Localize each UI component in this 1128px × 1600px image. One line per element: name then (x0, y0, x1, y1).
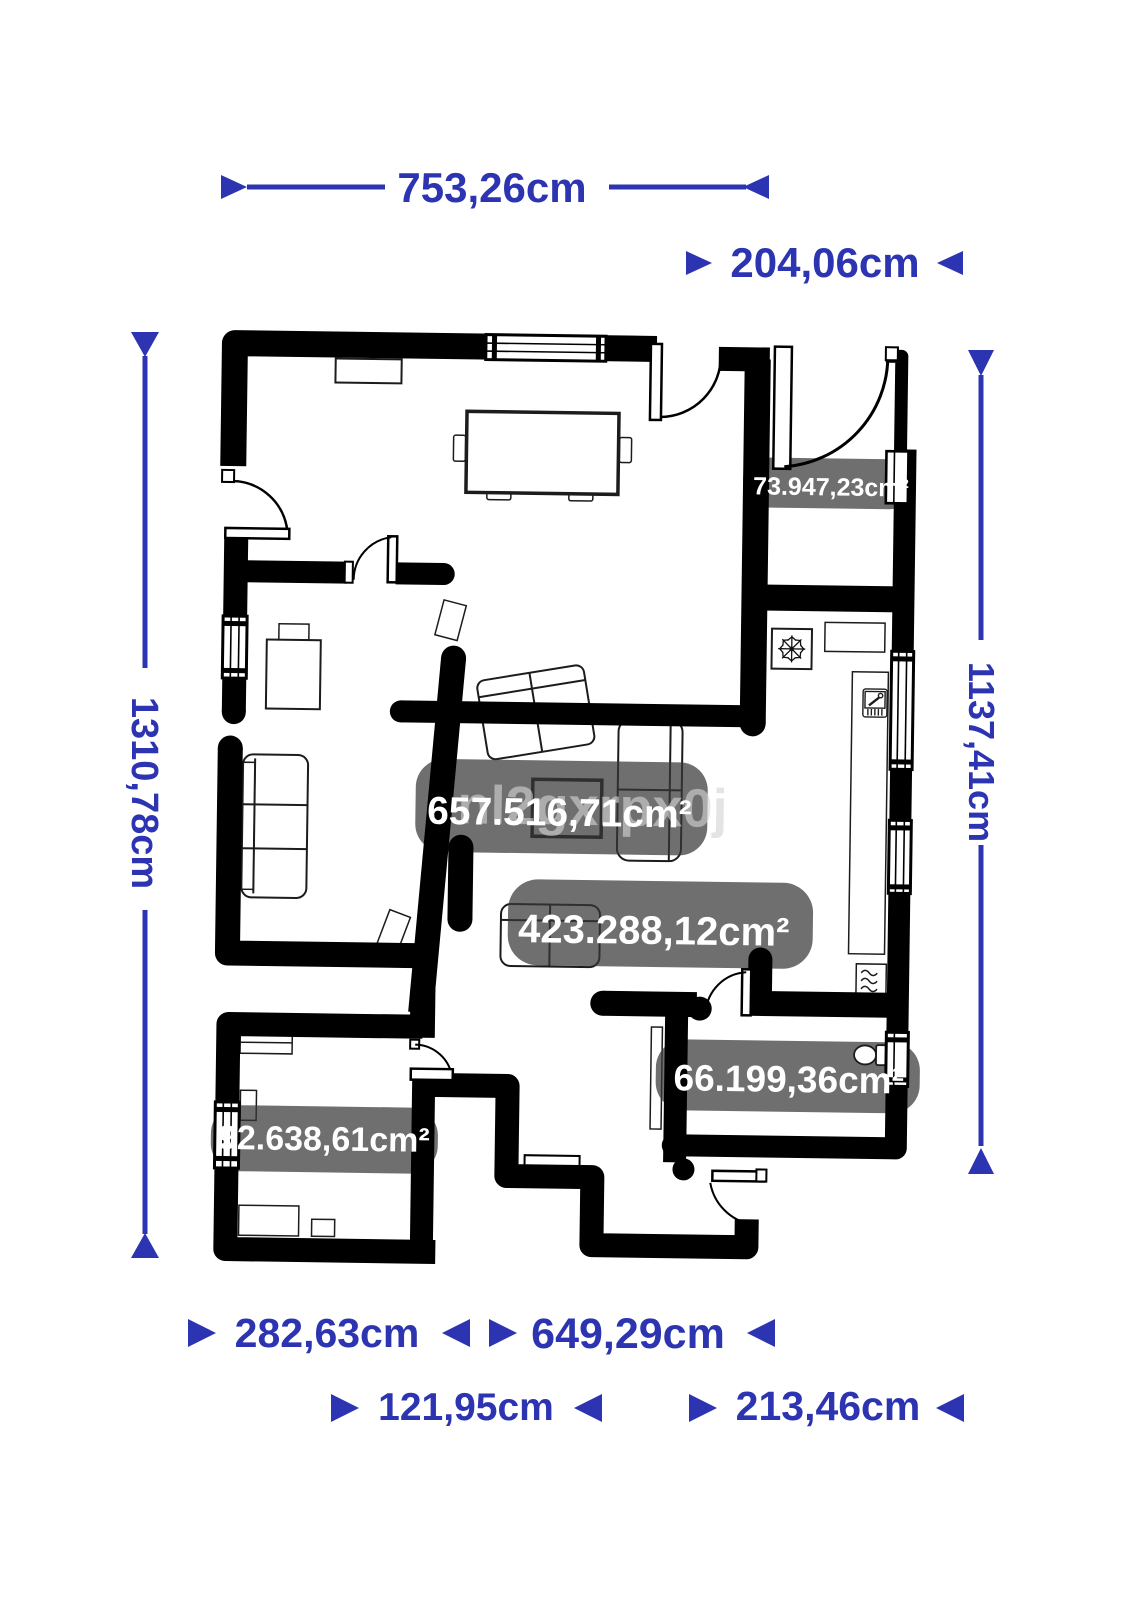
svg-text:423.288,12cm²: 423.288,12cm² (518, 907, 790, 955)
svg-text:92.638,61cm²: 92.638,61cm² (218, 1119, 430, 1160)
svg-text:73.947,23cm²: 73.947,23cm² (753, 472, 909, 502)
svg-text:649,29cm: 649,29cm (531, 1310, 725, 1358)
svg-text:213,46cm: 213,46cm (736, 1383, 921, 1429)
svg-text:121,95cm: 121,95cm (378, 1386, 554, 1429)
svg-text:657.516,71cm²: 657.516,71cm² (427, 790, 692, 837)
svg-text:204,06cm: 204,06cm (730, 239, 919, 286)
svg-text:1310,78cm: 1310,78cm (123, 697, 165, 889)
svg-text:1137,41cm: 1137,41cm (961, 662, 1002, 842)
svg-text:753,26cm: 753,26cm (397, 164, 586, 211)
svg-text:66.199,36cm²: 66.199,36cm² (673, 1057, 904, 1101)
svg-text:282,63cm: 282,63cm (235, 1310, 420, 1356)
